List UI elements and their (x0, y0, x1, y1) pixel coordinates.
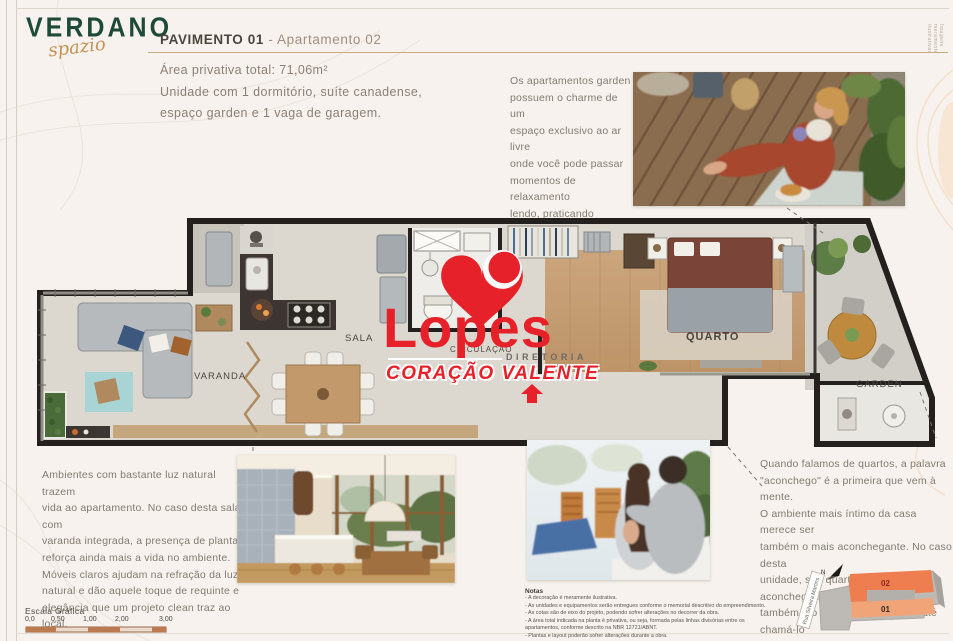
scale-tick: 1,00 (83, 616, 97, 623)
side-disclaimer: Imagens meramente ilustrativas (926, 24, 944, 54)
north-arrow-icon: N (821, 564, 843, 580)
watermark-tagline: CORAÇÃO VALENTE (386, 363, 599, 385)
room-label-sala: SALA (345, 333, 373, 344)
notes-title: Notas (525, 588, 815, 595)
building-core (867, 590, 915, 601)
room-label-varanda: VARANDA (194, 371, 246, 382)
watermark-rule (388, 358, 502, 360)
lopes-wordmark: Lopes (383, 306, 553, 350)
notes-line: - A decoração é meramente ilustrativa. (525, 595, 815, 603)
scale-tick: 0,50 (51, 616, 65, 623)
brochure-page: VERDANO spazio PAVIMENTO 01 - Apartament… (0, 0, 953, 641)
scale-title: Escala Gráfica (25, 606, 185, 616)
scale-bar (25, 626, 175, 634)
room-label-quarto: QUARTO (686, 331, 739, 343)
notes-line: - As cotas são de eixo do projeto, poden… (525, 610, 815, 618)
unit-02-label: 02 (881, 579, 890, 588)
unit-01-label: 01 (881, 605, 890, 614)
north-label: N (821, 570, 825, 576)
up-arrow-icon (521, 384, 543, 404)
room-label-garden: GARDEN (856, 379, 903, 390)
photo-interior-render (237, 455, 455, 583)
photo-couple (527, 440, 710, 580)
furniture-dining (272, 352, 374, 436)
floor-annex (817, 385, 930, 442)
notes-line: - A área total indicada na planta é priv… (525, 618, 815, 626)
watermark-division: DIRETORIA (506, 352, 587, 362)
key-plan: Rua Silveira Martins N 02 01 (793, 560, 951, 638)
graphic-scale: Escala Gráfica 0,0 0,50 1,00 2,00 3,00 (25, 606, 185, 632)
notes-line: apartamentos, conforme descrito na NBR 1… (525, 625, 815, 633)
notes-block: Notas - A decoração é meramente ilustrat… (525, 588, 815, 641)
notes-line: - As unidades e equipamentos serão entre… (525, 603, 815, 611)
scale-tick: 2,00 (115, 616, 129, 623)
scale-tick: 0,0 (25, 616, 35, 623)
scale-tick: 3,00 (159, 616, 173, 623)
notes-line: - Plantas e layout poderão sofrer altera… (525, 633, 815, 641)
